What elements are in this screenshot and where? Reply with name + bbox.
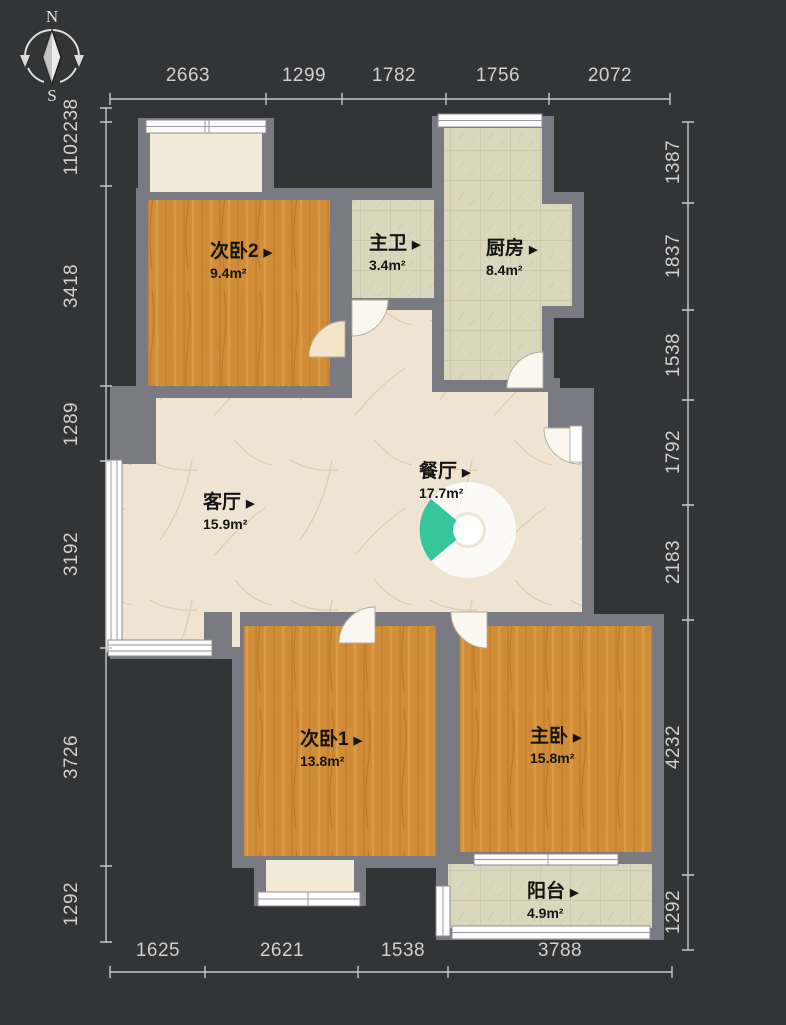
door-entry-leaf <box>570 426 582 462</box>
room-name: 主卧 <box>530 726 568 748</box>
room-link-icon: ▶ <box>412 239 420 252</box>
dim-right-5: 4232 <box>663 725 685 769</box>
dim-bottom-3: 3788 <box>538 940 582 962</box>
dim-right-1: 1837 <box>663 234 685 278</box>
room-area: 8.4m² <box>486 262 537 278</box>
wall-stub-left <box>120 396 156 464</box>
dim-bottom-0: 1625 <box>136 940 180 962</box>
dim-top-0: 2663 <box>166 65 210 87</box>
dim-left-0: 238 <box>61 98 83 131</box>
room-link-icon: ▶ <box>264 247 272 260</box>
room-name: 厨房 <box>486 238 524 260</box>
dim-left-4: 3192 <box>61 532 83 576</box>
camera-center-dot <box>453 515 483 545</box>
dim-top-3: 1756 <box>476 65 520 87</box>
room-link-icon: ▶ <box>246 498 254 511</box>
room-link-icon: ▶ <box>573 732 581 745</box>
dim-right-3: 1792 <box>663 430 685 474</box>
dim-right-4: 2183 <box>663 540 685 584</box>
dim-left-5: 3726 <box>61 735 83 779</box>
room-label-dining[interactable]: 餐厅▶ 17.7m² <box>419 461 470 501</box>
panorama-camera-widget[interactable] <box>420 497 501 563</box>
room-area: 13.8m² <box>300 753 362 769</box>
room-baywindow-top-floor <box>150 130 262 192</box>
room-label-bedroom1[interactable]: 次卧1▶ 13.8m² <box>300 729 362 769</box>
room-bedroom2-floor <box>148 200 330 386</box>
room-label-balcony[interactable]: 阳台▶ 4.9m² <box>527 881 578 921</box>
room-label-bedroom2[interactable]: 次卧2▶ 9.4m² <box>210 241 272 281</box>
compass-south-label: S <box>47 86 56 106</box>
room-link-icon: ▶ <box>462 467 470 480</box>
dim-top-1: 1299 <box>282 65 326 87</box>
room-label-bathroom[interactable]: 主卫▶ 3.4m² <box>369 233 420 273</box>
dim-right-2: 1538 <box>663 333 685 377</box>
dim-left-3: 1289 <box>61 402 83 446</box>
dim-bottom-2: 1538 <box>381 940 425 962</box>
dim-top-2: 1782 <box>372 65 416 87</box>
compass-icon <box>20 30 84 84</box>
dim-left-6: 1292 <box>61 882 83 926</box>
room-area: 9.4m² <box>210 265 272 281</box>
room-area: 17.7m² <box>419 485 470 501</box>
room-label-kitchen[interactable]: 厨房▶ 8.4m² <box>486 238 537 278</box>
window-living-bottom <box>108 640 212 656</box>
room-area: 4.9m² <box>527 905 578 921</box>
room-name: 阳台 <box>527 881 565 903</box>
room-name: 主卫 <box>369 233 407 255</box>
window-living-left <box>106 460 122 652</box>
room-name: 次卧2 <box>210 241 259 263</box>
floorplan-canvas: N S 2663 1299 1782 1756 2072 1625 2621 1… <box>0 0 786 1025</box>
room-name: 客厅 <box>203 492 241 514</box>
room-area: 3.4m² <box>369 257 420 273</box>
room-link-icon: ▶ <box>570 887 578 900</box>
dim-left-2: 3418 <box>61 264 83 308</box>
dim-top-4: 2072 <box>588 65 632 87</box>
room-link-icon: ▶ <box>529 244 537 257</box>
dim-left-1: 1102 <box>61 133 83 176</box>
compass-north-label: N <box>46 7 58 27</box>
room-area: 15.9m² <box>203 516 254 532</box>
room-name: 餐厅 <box>419 461 457 483</box>
room-link-icon: ▶ <box>354 735 362 748</box>
room-label-master[interactable]: 主卧▶ 15.8m² <box>530 726 581 766</box>
room-area: 15.8m² <box>530 750 581 766</box>
room-baywindow-bottom-floor <box>266 860 354 894</box>
dim-right-0: 1387 <box>663 140 685 184</box>
room-name: 次卧1 <box>300 729 349 751</box>
dim-right-6: 1292 <box>663 890 685 934</box>
room-label-living[interactable]: 客厅▶ 15.9m² <box>203 492 254 532</box>
dim-bottom-1: 2621 <box>260 940 304 962</box>
